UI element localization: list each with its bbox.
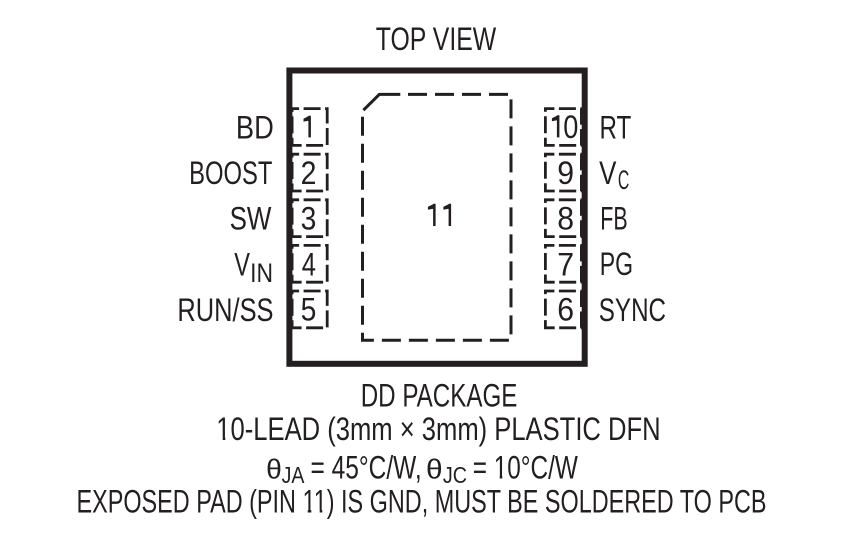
svg-text:IN: IN [250,258,273,288]
svg-text:RT: RT [600,109,632,145]
svg-text:θ: θ [266,453,282,484]
svg-text:BOOST: BOOST [189,155,272,191]
svg-text:SYNC: SYNC [599,292,666,328]
svg-text:6: 6 [557,292,574,328]
svg-text:10-LEAD (3mm × 3mm) PLASTIC DF: 10-LEAD (3mm × 3mm) PLASTIC DFN [216,411,660,447]
svg-text:7: 7 [557,246,574,282]
svg-text:BD: BD [236,109,274,145]
svg-text:2: 2 [301,155,317,191]
svg-text:= 45°C/W,: = 45°C/W, [311,449,422,485]
svg-text:EXPOSED PAD (PIN 11) IS GND, M: EXPOSED PAD (PIN 11) IS GND, MUST BE SOL… [77,484,767,520]
svg-text:C: C [618,165,629,195]
svg-text:SW: SW [230,201,272,237]
svg-text:5: 5 [301,292,317,328]
svg-text:9: 9 [557,155,574,191]
svg-text:PG: PG [600,246,633,282]
svg-text:8: 8 [557,201,574,237]
svg-text:V: V [599,155,617,191]
svg-text:DD PACKAGE: DD PACKAGE [361,378,518,414]
svg-text:θ: θ [426,453,443,484]
svg-text:0: 0 [563,109,578,145]
svg-text:= 10°C/W: = 10°C/W [473,449,579,485]
svg-text:RUN/SS: RUN/SS [177,292,273,328]
svg-text:TOP VIEW: TOP VIEW [376,21,497,57]
svg-text:4: 4 [302,246,316,282]
svg-text:3: 3 [301,201,317,237]
svg-text:V: V [234,246,250,282]
svg-text:FB: FB [600,201,627,237]
